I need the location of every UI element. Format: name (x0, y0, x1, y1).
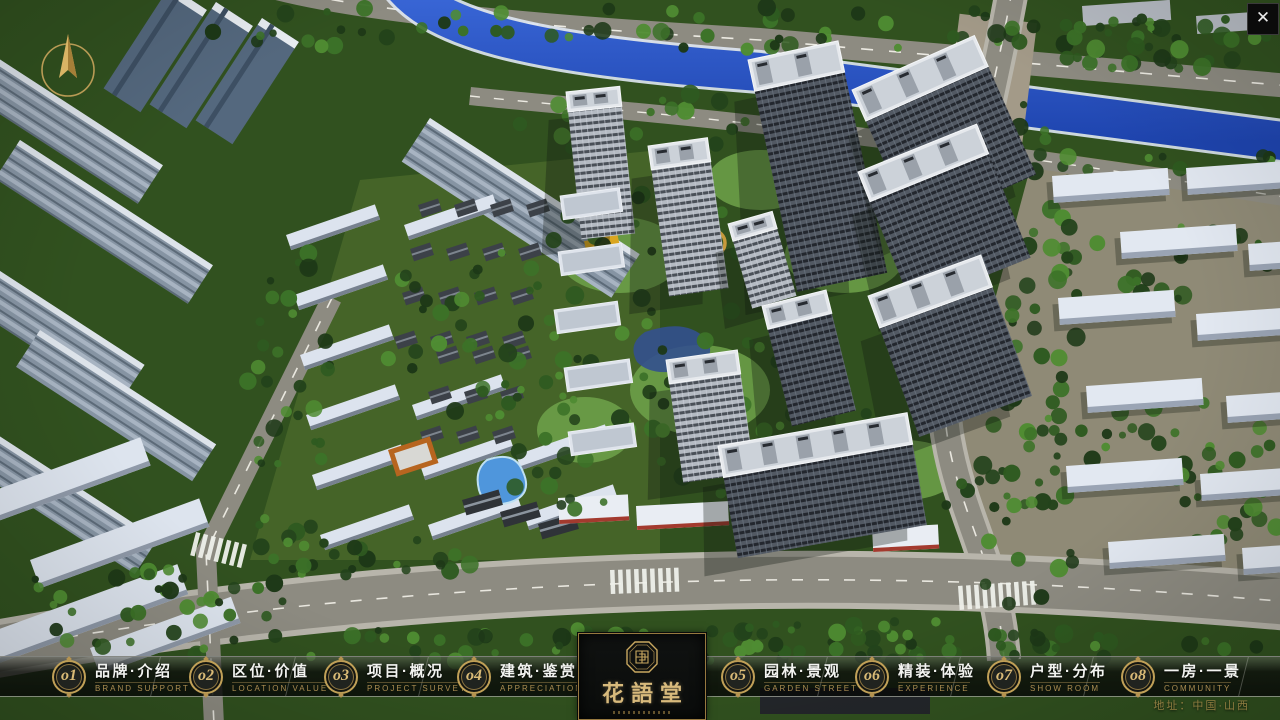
nav-label-en: GARDEN STREET (764, 682, 858, 693)
nav-number: o4 (466, 668, 482, 684)
badge-tick (1001, 656, 1007, 662)
nav-label-en: BRAND SUPPORT (95, 682, 190, 693)
badge-tick (735, 692, 741, 698)
project-title: 花語堂 (595, 676, 689, 708)
nav-item-6[interactable]: o6精装·体验EXPERIENCE (855, 656, 976, 697)
nav-label-zh: 区位·价值 (232, 660, 310, 681)
nav-number: o5 (730, 668, 746, 684)
nav-label-en: APPRECIATION (500, 682, 583, 693)
nav-number-badge: o4 (457, 660, 491, 694)
compass-icon (33, 28, 103, 111)
badge-tick (66, 656, 72, 662)
nav-number-badge: o7 (987, 660, 1021, 694)
nav-label-zh: 项目·概况 (367, 660, 445, 681)
badge-tick (471, 692, 477, 698)
seal-emblem-icon (625, 640, 659, 674)
nav-label-zh: 一房·一景 (1164, 660, 1242, 681)
project-logo[interactable]: 花語堂 (578, 633, 706, 720)
nav-item-1[interactable]: o1品牌·介绍BRAND SUPPORT (52, 656, 190, 697)
badge-tick (869, 656, 875, 662)
badge-tick (1001, 692, 1007, 698)
nav-label-en: LOCATION VALUE (232, 682, 328, 693)
nav-number-badge: o3 (324, 660, 358, 694)
project-subtitle-rule (613, 711, 671, 714)
nav-item-2[interactable]: o2区位·价值LOCATION VALUE (189, 656, 328, 697)
nav-item-5[interactable]: o5园林·景观GARDEN STREET (721, 656, 858, 697)
nav-number: o6 (864, 668, 880, 684)
nav-number-badge: o1 (52, 660, 86, 694)
badge-tick (735, 656, 741, 662)
nav-label-en: EXPERIENCE (898, 682, 970, 693)
nav-number-badge: o6 (855, 660, 889, 694)
nav-label-zh: 园林·景观 (764, 660, 842, 681)
badge-tick (66, 692, 72, 698)
presentation-window: ✕ o1品牌·介绍BRAND SUPPORTo2区位·价值LOCATION VA… (0, 0, 1280, 720)
badge-tick (869, 692, 875, 698)
nav-label-zh: 品牌·介绍 (95, 660, 173, 681)
nav-number: o2 (198, 668, 214, 684)
nav-number: o7 (996, 668, 1012, 684)
nav-label-zh: 精装·体验 (898, 660, 976, 681)
nav-number: o8 (1130, 668, 1146, 684)
nav-label-en: PROJECT SURVEY (367, 682, 467, 693)
badge-tick (471, 656, 477, 662)
nav-number: o1 (61, 668, 77, 684)
nav-label-zh: 户型·分布 (1030, 660, 1108, 681)
nav-label-en: SHOW ROOM (1030, 682, 1100, 693)
nav-number-badge: o2 (189, 660, 223, 694)
badge-tick (1135, 656, 1141, 662)
nav-label-zh: 建筑·鉴赏 (500, 660, 578, 681)
badge-tick (203, 656, 209, 662)
badge-tick (338, 656, 344, 662)
badge-tick (1135, 692, 1141, 698)
nav-item-3[interactable]: o3项目·概况PROJECT SURVEY (324, 656, 467, 697)
badge-tick (203, 692, 209, 698)
nav-item-8[interactable]: o8一房·一景COMMUNITY (1121, 656, 1242, 697)
nav-label-en: COMMUNITY (1164, 682, 1231, 693)
nav-number-badge: o5 (721, 660, 755, 694)
close-button[interactable]: ✕ (1247, 3, 1279, 35)
site-plan-render[interactable] (0, 0, 1280, 720)
badge-tick (338, 692, 344, 698)
nav-item-7[interactable]: o7户型·分布SHOW ROOM (987, 656, 1108, 697)
address-label: 地址：中国·山西 (1153, 697, 1250, 713)
nav-number: o3 (333, 668, 349, 684)
nav-number-badge: o8 (1121, 660, 1155, 694)
nav-item-4[interactable]: o4建筑·鉴赏APPRECIATION (457, 656, 583, 697)
